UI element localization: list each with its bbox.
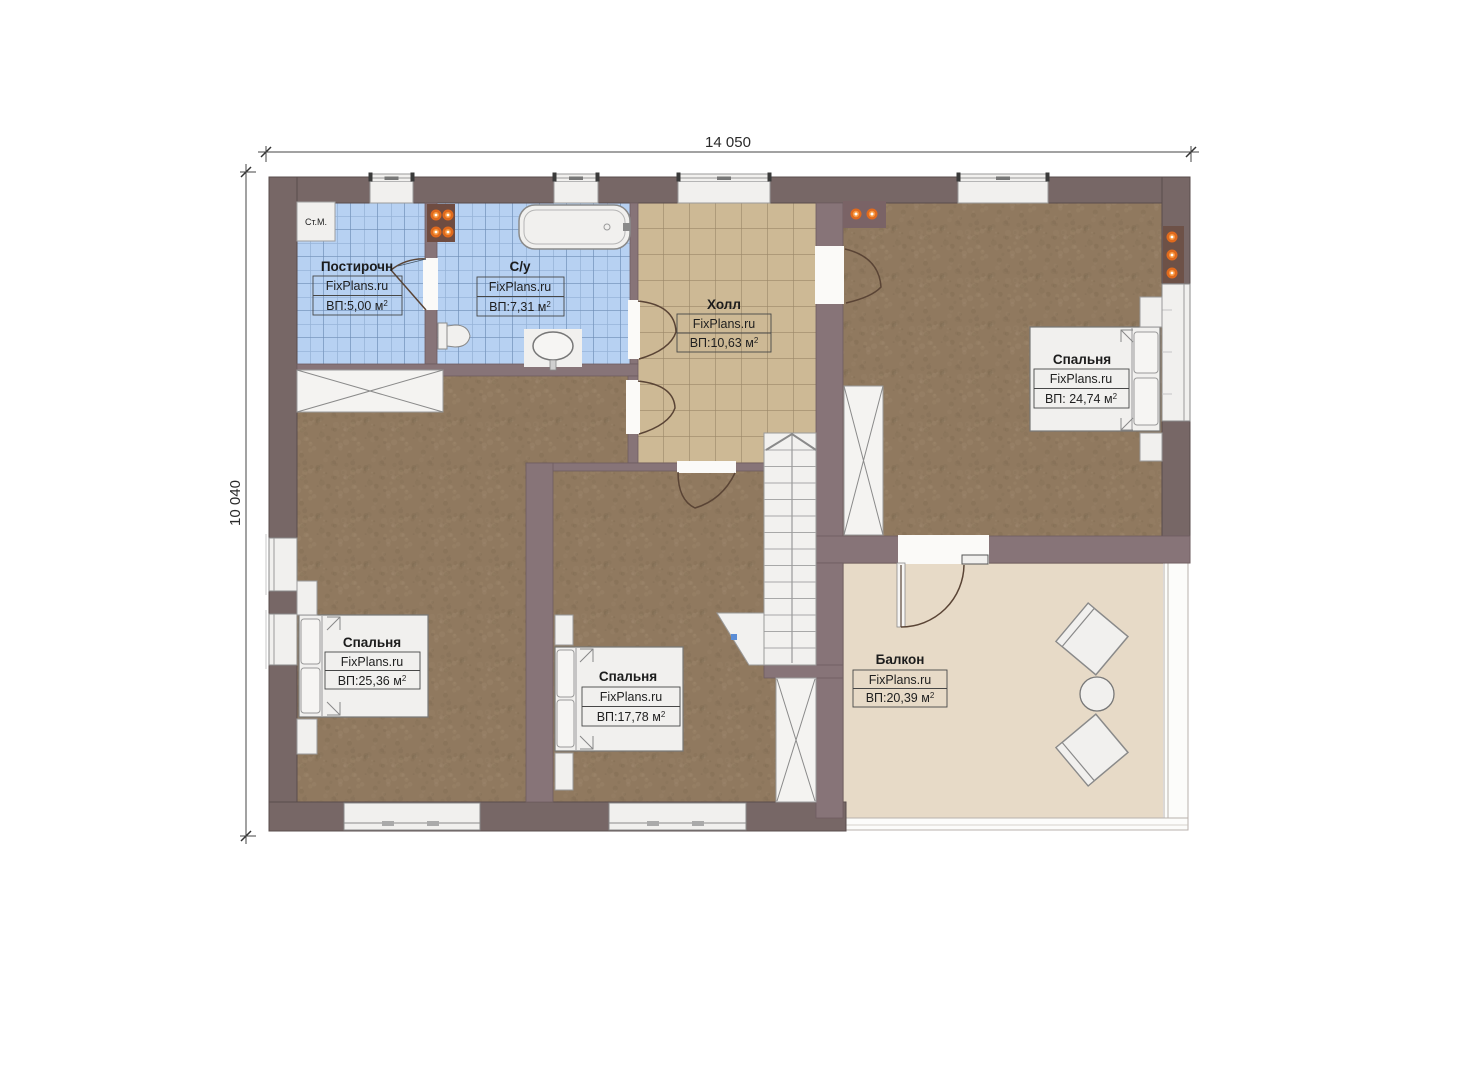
svg-text:ВП:5,00 м2: ВП:5,00 м2: [326, 299, 388, 313]
svg-text:10 040: 10 040: [227, 480, 244, 526]
svg-text:Спальня: Спальня: [599, 669, 657, 684]
svg-text:Холл: Холл: [707, 297, 741, 312]
svg-text:FixPlans.ru: FixPlans.ru: [600, 690, 663, 704]
svg-text:ВП:17,78 м2: ВП:17,78 м2: [597, 710, 666, 724]
svg-text:14 050: 14 050: [705, 134, 751, 151]
svg-text:FixPlans.ru: FixPlans.ru: [341, 655, 404, 669]
svg-text:FixPlans.ru: FixPlans.ru: [1050, 372, 1113, 386]
svg-text:Ст.М.: Ст.М.: [305, 217, 327, 227]
svg-text:ВП: 24,74 м2: ВП: 24,74 м2: [1045, 392, 1118, 406]
svg-text:FixPlans.ru: FixPlans.ru: [693, 317, 756, 331]
svg-text:Постирочн: Постирочн: [321, 259, 393, 274]
svg-text:FixPlans.ru: FixPlans.ru: [326, 279, 389, 293]
svg-text:Балкон: Балкон: [876, 652, 925, 667]
svg-text:FixPlans.ru: FixPlans.ru: [489, 280, 552, 294]
svg-text:С/у: С/у: [509, 259, 531, 274]
svg-text:ВП:25,36 м2: ВП:25,36 м2: [338, 674, 407, 688]
svg-text:Спальня: Спальня: [343, 635, 401, 650]
svg-text:ВП:10,63 м2: ВП:10,63 м2: [690, 336, 759, 350]
svg-text:Спальня: Спальня: [1053, 352, 1111, 367]
svg-text:ВП:20,39 м2: ВП:20,39 м2: [866, 691, 935, 705]
svg-text:ВП:7,31 м2: ВП:7,31 м2: [489, 300, 551, 314]
svg-text:FixPlans.ru: FixPlans.ru: [869, 673, 932, 687]
